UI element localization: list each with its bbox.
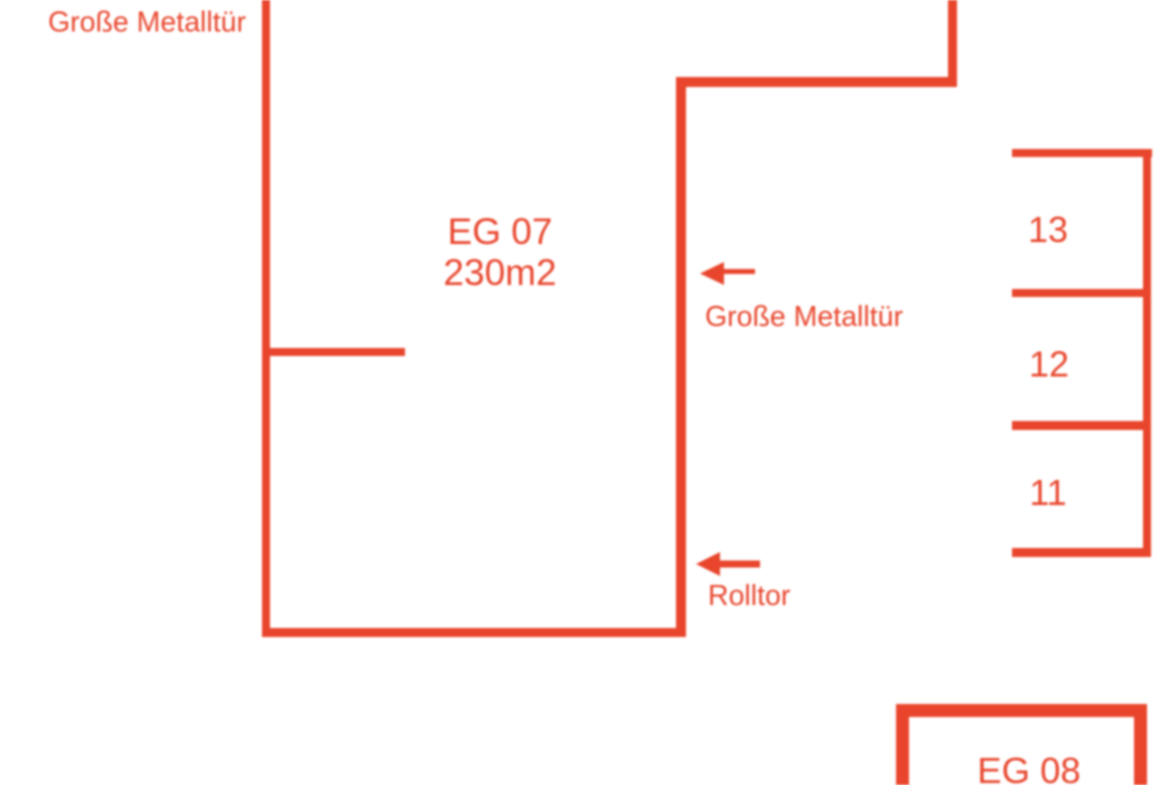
svg-text:EG 08: EG 08 — [977, 750, 1080, 785]
svg-text:Rolltor: Rolltor — [708, 580, 791, 612]
svg-text:12: 12 — [1029, 344, 1069, 385]
svg-text:13: 13 — [1028, 209, 1068, 250]
svg-text:230m2: 230m2 — [443, 252, 556, 293]
svg-text:11: 11 — [1029, 472, 1066, 513]
svg-text:Große Metalltür: Große Metalltür — [705, 301, 903, 333]
svg-text:EG 07: EG 07 — [448, 211, 553, 252]
svg-text:Große Metalltür: Große Metalltür — [48, 7, 246, 39]
